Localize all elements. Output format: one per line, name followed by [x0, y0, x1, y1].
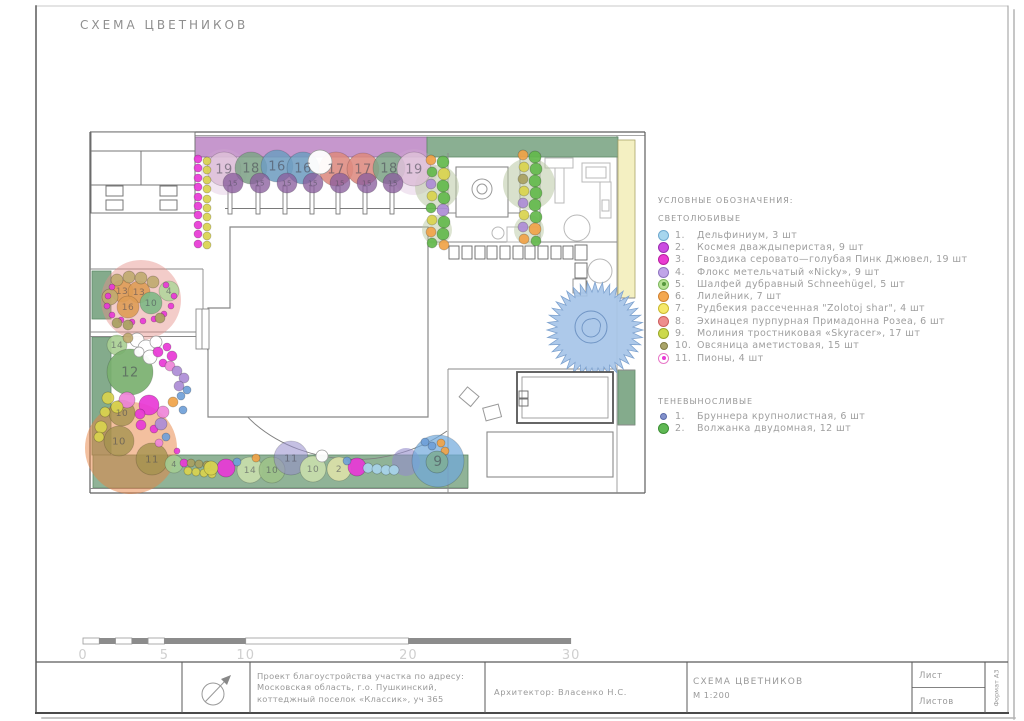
- legend-item: 2. Космея дваждыперистая, 9 шт: [658, 241, 1008, 253]
- svg-text:10: 10: [307, 465, 319, 475]
- drawing-sheet: 1918161617171819151515151515151313161041…: [0, 0, 1024, 721]
- svg-text:4: 4: [171, 460, 177, 469]
- path-yellow-strip: [618, 140, 635, 298]
- sheet-number-label: Лист: [919, 671, 943, 681]
- garage-building: [91, 132, 195, 213]
- legend-sun-heading: СВЕТОЛЮБИВЫЕ: [658, 214, 1008, 223]
- pool-area: [459, 372, 613, 477]
- plant-color-dot: [658, 230, 669, 241]
- legend-item-num: 8.: [675, 316, 697, 327]
- plant-color-dot: [660, 413, 667, 420]
- svg-text:16: 16: [122, 303, 134, 313]
- tree-circle: [588, 259, 612, 283]
- legend-item-num: 4.: [675, 267, 697, 278]
- legend: УСЛОВНЫЕ ОБОЗНАЧЕНИЯ: СВЕТОЛЮБИВЫЕ 1. Де…: [658, 196, 1008, 435]
- legend-item: 1. Бруннера крупнолистная, 6 шт: [658, 410, 1008, 422]
- bench: [196, 309, 209, 349]
- tree-circle: [564, 215, 590, 241]
- svg-text:17: 17: [354, 163, 372, 178]
- scale-bar: 05102030: [78, 638, 580, 663]
- svg-text:15: 15: [282, 179, 292, 187]
- project-address: Проект благоустройства участка по адресу…: [257, 671, 485, 705]
- fire-pit: [456, 167, 508, 217]
- svg-text:15: 15: [388, 179, 398, 187]
- legend-item-label: Молиния тростниковая «Skyracer», 17 шт: [697, 328, 920, 339]
- svg-text:15: 15: [255, 179, 265, 187]
- legend-heading: УСЛОВНЫЕ ОБОЗНАЧЕНИЯ:: [658, 196, 1008, 205]
- legend-item: 5. Шалфей дубравный Schneehügel, 5 шт: [658, 278, 1008, 290]
- svg-text:15: 15: [228, 179, 238, 187]
- svg-text:17: 17: [327, 163, 345, 178]
- plant-color-dot: [660, 342, 668, 350]
- legend-item-num: 9.: [675, 328, 697, 339]
- plant-color-dot: [658, 316, 669, 327]
- legend-item: 6. Лилейник, 7 шт: [658, 290, 1008, 302]
- svg-text:14: 14: [111, 341, 123, 351]
- svg-text:11: 11: [145, 455, 159, 466]
- svg-text:10: 10: [266, 466, 278, 476]
- legend-item: 3. Гвоздика серовато—голубая Пинк Джювел…: [658, 254, 1008, 266]
- sheet-title: СХЕМА ЦВЕТНИКОВ: [693, 677, 803, 687]
- svg-text:18: 18: [242, 162, 260, 177]
- plant-color-dot: [658, 328, 669, 339]
- svg-text:10: 10: [112, 437, 126, 448]
- legend-item-label: Космея дваждыперистая, 9 шт: [697, 242, 864, 253]
- sheet-scale: М 1:200: [693, 690, 730, 700]
- dot-center: [662, 356, 666, 360]
- garage-window: [106, 200, 123, 210]
- legend-shade-heading: ТЕНЕВЫНОСЛИВЫЕ: [658, 397, 1008, 406]
- svg-text:15: 15: [362, 179, 372, 187]
- legend-item-num: 1.: [675, 230, 697, 241]
- legend-item-label: Гвоздика серовато—голубая Пинк Джювел, 1…: [697, 254, 967, 265]
- svg-text:13: 13: [116, 287, 128, 297]
- legend-item-label: Дельфиниум, 3 шт: [697, 230, 797, 241]
- legend-item-num: 10.: [675, 340, 697, 351]
- sheets-total-label: Листов: [919, 697, 954, 707]
- stepping-stone: [483, 404, 502, 421]
- legend-item: 4. Флокс метельчатый «Nicky», 9 шт: [658, 266, 1008, 278]
- legend-item: 2. Волжанка двудомная, 12 шт: [658, 423, 1008, 435]
- svg-text:0: 0: [78, 648, 87, 663]
- project-line: коттеджный поселок «Классик», уч 365: [257, 694, 485, 705]
- svg-text:2: 2: [336, 465, 342, 475]
- legend-item: 10. Овсяница аметистовая, 15 шт: [658, 340, 1008, 352]
- svg-text:4: 4: [166, 287, 172, 297]
- legend-item-num: 7.: [675, 303, 697, 314]
- deck-boards: [449, 245, 587, 296]
- page-title: СХЕМА ЦВЕТНИКОВ: [80, 18, 248, 32]
- svg-text:13: 13: [133, 288, 145, 298]
- pool: [517, 372, 613, 423]
- plant-color-dot: [658, 291, 669, 302]
- platform: [487, 432, 613, 477]
- svg-text:10: 10: [236, 648, 255, 663]
- legend-item-label: Эхинацея пурпурная Примадонна Розеа, 6 ш…: [697, 316, 945, 327]
- plant-color-dot: [658, 423, 669, 434]
- legend-item: 7. Рудбекия рассеченная "Zolotoj shar", …: [658, 303, 1008, 315]
- svg-text:11: 11: [284, 454, 298, 465]
- legend-item-num: 3.: [675, 254, 697, 265]
- stepping-stone: [459, 387, 479, 407]
- table: [545, 158, 573, 168]
- legend-item-num: 2.: [675, 242, 697, 253]
- north-arrow-icon: [202, 675, 231, 705]
- svg-text:5: 5: [160, 648, 169, 663]
- spruce-tree: [547, 282, 643, 378]
- legend-item-num: 1.: [675, 411, 697, 422]
- architect-name: Архитектор: Власенко Н.С.: [494, 687, 627, 697]
- svg-text:14: 14: [244, 466, 256, 476]
- plant-color-dot: [658, 353, 669, 364]
- plant-color-dot: [658, 267, 669, 278]
- project-line: Московская область, г.о. Пушкинский,: [257, 682, 485, 693]
- legend-item: 8. Эхинацея пурпурная Примадонна Розеа, …: [658, 315, 1008, 327]
- svg-text:15: 15: [335, 179, 345, 187]
- legend-item-label: Лилейник, 7 шт: [697, 291, 781, 302]
- legend-item-label: Флокс метельчатый «Nicky», 9 шт: [697, 267, 880, 278]
- legend-item: 9. Молиния тростниковая «Skyracer», 17 ш…: [658, 327, 1008, 339]
- legend-item-label: Рудбекия рассеченная "Zolotoj shar", 4 ш…: [697, 303, 925, 314]
- plant-color-dot: [658, 303, 669, 314]
- format-label-text: Формат А3: [993, 669, 1001, 706]
- legend-item: 1. Дельфиниум, 3 шт: [658, 229, 1008, 241]
- plant-color-dot: [658, 242, 669, 253]
- svg-text:12: 12: [121, 366, 139, 381]
- format-label: Формат А3: [985, 662, 1008, 713]
- house-outline: [196, 227, 428, 417]
- garage-window: [160, 200, 177, 210]
- plant-color-dot: [658, 279, 669, 290]
- svg-text:20: 20: [399, 648, 418, 663]
- svg-text:19: 19: [215, 163, 233, 178]
- svg-text:19: 19: [405, 163, 423, 178]
- svg-text:15: 15: [308, 179, 318, 187]
- legend-item-num: 6.: [675, 291, 697, 302]
- legend-item-label: Бруннера крупнолистная, 6 шт: [697, 411, 865, 422]
- legend-item-label: Волжанка двудомная, 12 шт: [697, 423, 851, 434]
- legend-item-label: Овсяница аметистовая, 15 шт: [697, 340, 859, 351]
- legend-item-num: 5.: [675, 279, 697, 290]
- garage-window: [106, 186, 123, 196]
- legend-item-num: 11.: [675, 353, 697, 364]
- svg-text:16: 16: [268, 160, 286, 175]
- legend-item-label: Шалфей дубравный Schneehügel, 5 шт: [697, 279, 905, 290]
- plant-color-dot: [658, 254, 669, 265]
- dot-center: [662, 282, 666, 286]
- garage-window: [160, 186, 177, 196]
- legend-item: 11. Пионы, 4 шт: [658, 352, 1008, 364]
- legend-item-num: 2.: [675, 423, 697, 434]
- svg-text:16: 16: [294, 162, 312, 177]
- svg-text:10: 10: [145, 299, 157, 309]
- green-patch-right: [618, 370, 635, 425]
- legend-item-label: Пионы, 4 шт: [697, 353, 764, 364]
- svg-text:18: 18: [380, 162, 398, 177]
- project-line: Проект благоустройства участка по адресу…: [257, 671, 485, 682]
- svg-text:9: 9: [433, 454, 442, 470]
- svg-text:30: 30: [562, 648, 581, 663]
- svg-text:10: 10: [116, 409, 128, 419]
